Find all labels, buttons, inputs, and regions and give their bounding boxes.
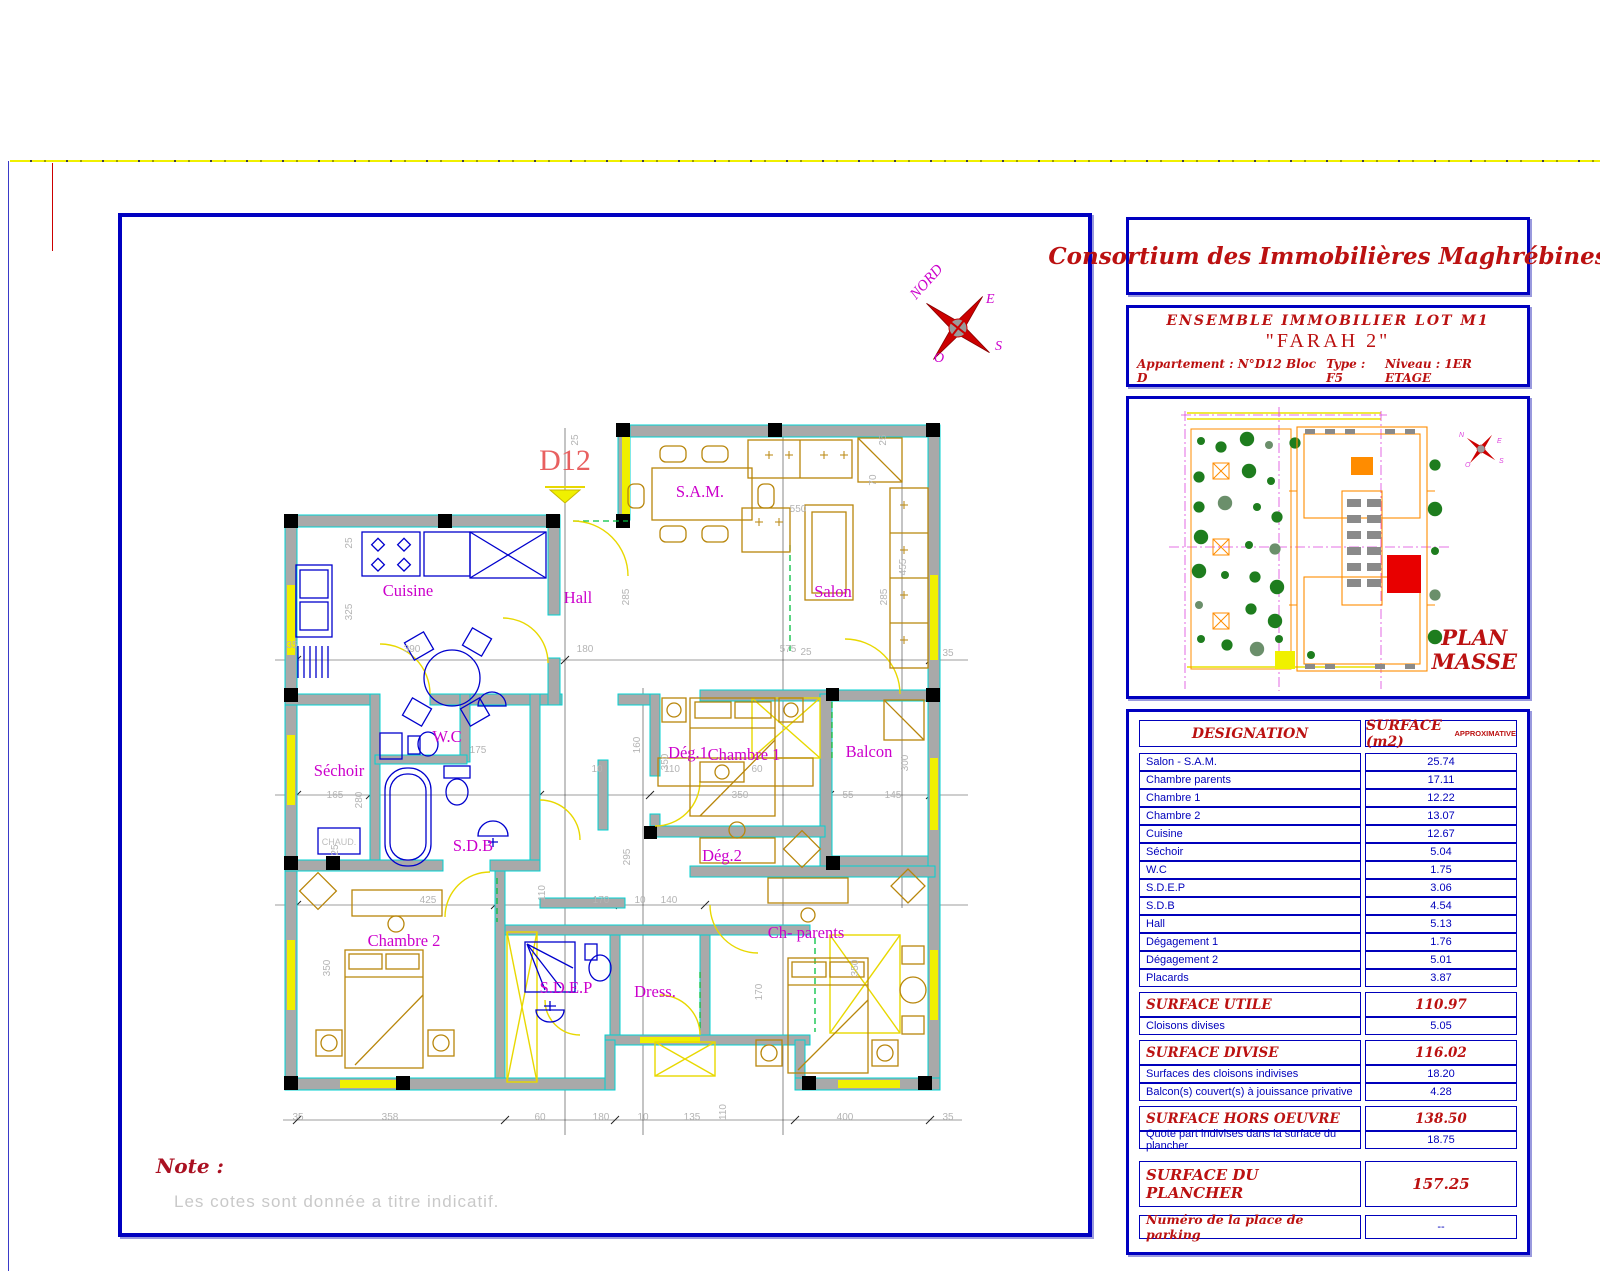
dimension-label: 280 xyxy=(354,791,365,808)
surface-row-label: Chambre 2 xyxy=(1139,807,1361,825)
dimension-label: 35 xyxy=(286,640,298,651)
surface-row: Cuisine12.67 xyxy=(1139,825,1517,843)
parking-row: Numéro de la place de parking-- xyxy=(1139,1215,1517,1239)
parking-label: Numéro de la place de parking xyxy=(1139,1215,1361,1239)
surface-row-value: 18.20 xyxy=(1365,1065,1517,1083)
dimension-label: 110 xyxy=(718,1104,729,1120)
surface-row: Salon - S.A.M.25.74 xyxy=(1139,753,1517,771)
tree-icon xyxy=(1218,496,1232,510)
dimension-label: 180 xyxy=(577,644,594,655)
note-heading: Note : xyxy=(156,1154,224,1178)
surface-row-label: Placards xyxy=(1139,969,1361,987)
surface-row-value: 4.28 xyxy=(1365,1083,1517,1101)
surface-row: Cloisons divises5.05 xyxy=(1139,1017,1517,1035)
room-label: S.D.E.P xyxy=(540,978,593,997)
surface-row-value: 116.02 xyxy=(1365,1040,1517,1065)
plancher-value: 157.25 xyxy=(1365,1161,1517,1207)
dimension-label: 10 xyxy=(591,764,603,775)
surface-row-value: 12.67 xyxy=(1365,825,1517,843)
compass-south-label: S xyxy=(995,339,1002,354)
tree-icon xyxy=(1275,635,1283,643)
tree-icon xyxy=(1429,459,1440,470)
dimension-label: 165 xyxy=(327,790,344,801)
dimension-label: 10 xyxy=(634,895,646,906)
dimension-label: 25 xyxy=(344,537,355,549)
surface-row-label: Cloisons divises xyxy=(1139,1017,1361,1035)
dimension-label: 575 xyxy=(780,644,797,655)
surface-row: S.D.B4.54 xyxy=(1139,897,1517,915)
room-label: Séchoir xyxy=(314,761,365,780)
tree-icon xyxy=(1271,511,1282,522)
dimension-label: 285 xyxy=(879,588,890,605)
svg-text:E: E xyxy=(1497,438,1502,445)
room-label: Chambre 1 xyxy=(708,745,781,764)
tree-icon xyxy=(1431,547,1439,555)
surface-row-value: 13.07 xyxy=(1365,807,1517,825)
surface-row: Chambre parents17.11 xyxy=(1139,771,1517,789)
surface-row-value: 12.22 xyxy=(1365,789,1517,807)
apartment-number-label: D12 xyxy=(539,444,591,477)
surface-row: Balcon(s) couvert(s) à jouissance privat… xyxy=(1139,1083,1517,1101)
surface-row-label: Séchoir xyxy=(1139,843,1361,861)
dimension-label: 55 xyxy=(842,790,854,801)
room-label: Dress. xyxy=(634,982,676,1001)
project-details: Appartement : N°D12 Bloc D Type : F5 Niv… xyxy=(1137,357,1519,385)
tree-icon xyxy=(1215,441,1226,452)
apartment-id: Appartement : N°D12 Bloc D xyxy=(1137,357,1326,385)
surface-row-label: SURFACE UTILE xyxy=(1139,992,1361,1017)
dimension-label: 60 xyxy=(751,764,763,775)
tree-icon xyxy=(1245,603,1256,614)
room-label: Dég.2 xyxy=(702,846,742,865)
surface-row-value: 25.74 xyxy=(1365,753,1517,771)
compass-west-label: O xyxy=(934,351,944,366)
tree-icon xyxy=(1428,502,1442,516)
tree-icon xyxy=(1269,543,1280,554)
dimension-label: 358 xyxy=(382,1112,399,1123)
dimension-label: 145 xyxy=(885,790,902,801)
tree-icon xyxy=(1267,477,1275,485)
boiler-label: CHAUD. xyxy=(322,837,357,847)
dimension-label: 425 xyxy=(420,895,437,906)
dimension-label: 25 xyxy=(878,434,889,446)
tree-icon xyxy=(1265,441,1273,449)
dimension-label: 295 xyxy=(622,848,633,865)
note-text: Les cotes sont donnée a titre indicatif. xyxy=(174,1192,499,1212)
tree-icon xyxy=(1221,639,1232,650)
surface-plancher-row: SURFACE DU PLANCHER157.25 xyxy=(1139,1161,1517,1207)
dimension-label: 135 xyxy=(684,1112,701,1123)
surface-row-value: 5.05 xyxy=(1365,1017,1517,1035)
tree-icon xyxy=(1192,564,1206,578)
room-label: Cuisine xyxy=(383,581,433,600)
surface-row-label: S.D.E.P xyxy=(1139,879,1361,897)
dimension-label: 35 xyxy=(942,1112,954,1123)
surface-row: Hall5.13 xyxy=(1139,915,1517,933)
surface-row: Placards3.87 xyxy=(1139,969,1517,987)
tree-icon xyxy=(1194,530,1208,544)
dimension-label: 550 xyxy=(790,504,807,515)
surface-row-value: 4.54 xyxy=(1365,897,1517,915)
plancher-label: SURFACE DU PLANCHER xyxy=(1139,1161,1361,1207)
dimension-label: 170 xyxy=(593,895,610,906)
surface-row-label: Hall xyxy=(1139,915,1361,933)
surface-row-label: Cuisine xyxy=(1139,825,1361,843)
dimension-label: 390 xyxy=(404,644,421,655)
surface-row-value: 1.76 xyxy=(1365,933,1517,951)
surface-row-label: Quote part indivises dans la surface du … xyxy=(1139,1131,1361,1149)
dimension-label: 285 xyxy=(621,588,632,605)
room-label: Salon xyxy=(814,582,852,601)
surface-summary-row: SURFACE UTILE110.97 xyxy=(1139,992,1517,1017)
surface-row: Dégagement 25.01 xyxy=(1139,951,1517,969)
page-border-left-line xyxy=(8,161,9,1271)
surface-row: Séchoir5.04 xyxy=(1139,843,1517,861)
surface-header: SURFACE (m2)APPROXIMATIVE xyxy=(1365,720,1517,747)
tree-icon xyxy=(1197,437,1205,445)
room-label: Balcon xyxy=(846,742,893,761)
dimension-label: 180 xyxy=(593,1112,610,1123)
surface-row: Quote part indivises dans la surface du … xyxy=(1139,1131,1517,1149)
surface-row: Chambre 213.07 xyxy=(1139,807,1517,825)
dimension-label: 350 xyxy=(322,959,333,976)
surface-row-value: 5.13 xyxy=(1365,915,1517,933)
tree-icon xyxy=(1253,503,1261,511)
company-name: Consortium des Immobilières Maghrébines xyxy=(1048,243,1600,270)
site-plan-title: PLAN MASSE xyxy=(1432,626,1517,674)
surface-summary-row: SURFACE DIVISE116.02 xyxy=(1139,1040,1517,1065)
project-title-block: ENSEMBLE IMMOBILIER LOT M1 "FARAH 2" App… xyxy=(1126,305,1530,387)
site-plan-block: NE OS PLAN MASSE xyxy=(1126,396,1530,699)
dimension-label: 300 xyxy=(900,754,911,771)
dimension-label: 350 xyxy=(732,790,749,801)
dimension-label: 110 xyxy=(537,885,548,901)
room-label: Ch- parents xyxy=(768,923,845,942)
tree-icon xyxy=(1268,614,1282,628)
tree-icon xyxy=(1197,635,1205,643)
room-label: S.D.B xyxy=(453,836,493,855)
tree-icon xyxy=(1193,471,1204,482)
site-yellow-marker xyxy=(1275,651,1295,669)
dimension-label: 10 xyxy=(637,1112,649,1123)
surface-row-label: S.D.B xyxy=(1139,897,1361,915)
tree-icon xyxy=(1245,541,1253,549)
dimension-label: 25 xyxy=(800,647,812,658)
drawing-frame: CuisineHallS.A.M.SalonSéchoirW.CS.D.BDég… xyxy=(118,213,1092,1237)
surface-row-label: Chambre 1 xyxy=(1139,789,1361,807)
surface-row-label: Dégagement 2 xyxy=(1139,951,1361,969)
surface-row-value: 18.75 xyxy=(1365,1131,1517,1149)
surface-row-value: 1.75 xyxy=(1365,861,1517,879)
surface-table-block: DESIGNATIONSURFACE (m2)APPROXIMATIVESalo… xyxy=(1126,709,1530,1255)
surface-table: DESIGNATIONSURFACE (m2)APPROXIMATIVESalo… xyxy=(1139,720,1517,1239)
surface-row-label: Chambre parents xyxy=(1139,771,1361,789)
project-line1: ENSEMBLE IMMOBILIER LOT M1 xyxy=(1137,313,1519,329)
surface-row-label: SURFACE DIVISE xyxy=(1139,1040,1361,1065)
surface-row: S.D.E.P3.06 xyxy=(1139,879,1517,897)
dimension-label: 60 xyxy=(534,1112,546,1123)
room-label: Chambre 2 xyxy=(368,931,441,950)
svg-text:S: S xyxy=(1499,458,1504,465)
tree-icon xyxy=(1221,571,1229,579)
dimension-label: 140 xyxy=(661,895,678,906)
surface-row-value: 110.97 xyxy=(1365,992,1517,1017)
tree-icon xyxy=(1242,464,1256,478)
tree-icon xyxy=(1193,501,1204,512)
apartment-level: Niveau : 1ER ETAGE xyxy=(1385,357,1519,385)
dimension-label: 35 xyxy=(292,1112,304,1123)
surface-row-value: 3.06 xyxy=(1365,879,1517,897)
dimension-label: 455 xyxy=(898,558,909,575)
surface-row: Dégagement 11.76 xyxy=(1139,933,1517,951)
designation-header: DESIGNATION xyxy=(1139,720,1361,747)
surface-row: Surfaces des cloisons indivises18.20 xyxy=(1139,1065,1517,1083)
dimension-label: 170 xyxy=(754,983,765,1000)
tree-icon xyxy=(1289,437,1300,448)
tree-icon xyxy=(1429,589,1440,600)
room-label: S.A.M. xyxy=(676,482,724,501)
surface-row-label: Dégagement 1 xyxy=(1139,933,1361,951)
svg-text:O: O xyxy=(1465,462,1471,469)
compass-east-label: E xyxy=(985,292,995,307)
entrance-highlight xyxy=(1351,457,1373,475)
surface-row: Chambre 112.22 xyxy=(1139,789,1517,807)
surface-row-label: Balcon(s) couvert(s) à jouissance privat… xyxy=(1139,1083,1361,1101)
dimension-label: 70 xyxy=(868,474,879,486)
floor-plan-canvas: CuisineHallS.A.M.SalonSéchoirW.CS.D.BDég… xyxy=(122,217,1080,1225)
dimension-label: 400 xyxy=(837,1112,854,1123)
dimension-label: 350 xyxy=(660,753,671,770)
tree-icon xyxy=(1270,580,1284,594)
project-name: "FARAH 2" xyxy=(1137,330,1519,353)
walls xyxy=(285,425,940,1090)
surface-row-label: Surfaces des cloisons indivises xyxy=(1139,1065,1361,1083)
parking-value: -- xyxy=(1365,1215,1517,1239)
dimension-label: 175 xyxy=(470,745,487,756)
room-label: Hall xyxy=(564,588,593,607)
site-boundary xyxy=(1169,407,1449,691)
page-border-dashed-line xyxy=(10,160,1600,162)
surface-row-value: 17.11 xyxy=(1365,771,1517,789)
margin-red-tick xyxy=(52,163,53,251)
surface-row-label: W.C xyxy=(1139,861,1361,879)
dimension-label: 350 xyxy=(850,959,861,976)
svg-text:N: N xyxy=(1459,432,1465,439)
room-label: W.C xyxy=(432,727,461,746)
room-label: Dég.1 xyxy=(668,743,708,762)
cushion-marks xyxy=(755,451,908,644)
surface-row-value: 5.04 xyxy=(1365,843,1517,861)
selected-apartment-highlight xyxy=(1387,555,1421,593)
tree-icon xyxy=(1250,642,1264,656)
dimension-label: 325 xyxy=(344,603,355,620)
dimension-label: 160 xyxy=(632,736,643,753)
tree-icon xyxy=(1195,601,1203,609)
opening-dashed-lines xyxy=(497,521,832,1032)
tree-icon xyxy=(1307,651,1315,659)
surface-table-header: DESIGNATIONSURFACE (m2)APPROXIMATIVE xyxy=(1139,720,1517,747)
tree-icon xyxy=(1249,571,1260,582)
dimension-label: 35 xyxy=(942,648,954,659)
apartment-type: Type : F5 xyxy=(1326,357,1385,385)
surface-row-value: 138.50 xyxy=(1365,1106,1517,1131)
compass-north-label: NORD xyxy=(906,262,946,304)
surface-row-label: Salon - S.A.M. xyxy=(1139,753,1361,771)
tree-icon xyxy=(1240,432,1254,446)
surface-row-value: 3.87 xyxy=(1365,969,1517,987)
company-title-block: Consortium des Immobilières Maghrébines xyxy=(1126,217,1530,295)
surface-row: W.C1.75 xyxy=(1139,861,1517,879)
surface-row-value: 5.01 xyxy=(1365,951,1517,969)
